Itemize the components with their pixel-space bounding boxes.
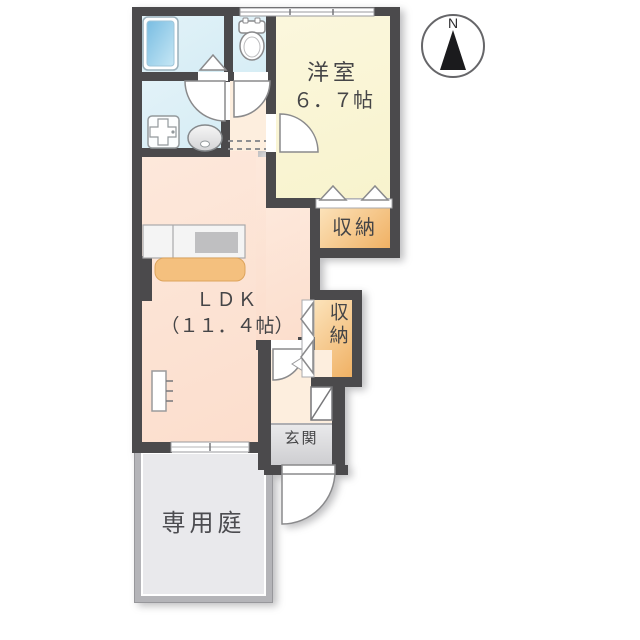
compass: N — [0, 0, 640, 640]
floor-plan-page: 洋室 ６．７帖 ＬＤＫ （１１．４帖） 収納 収納 玄関 専用庭 N — [0, 0, 640, 640]
compass-north-label: N — [448, 15, 458, 31]
